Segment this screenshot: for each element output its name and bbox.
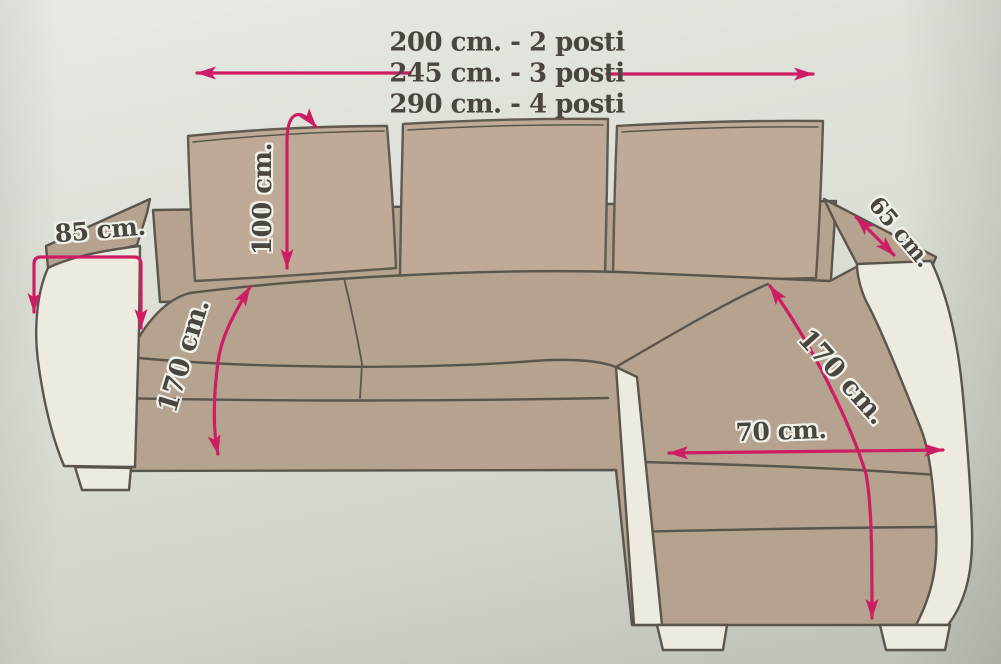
size-options: 200 cm. - 2 posti 245 cm. - 3 posti 290 …	[389, 28, 624, 121]
back-cushion-right	[613, 121, 823, 280]
sofa-body	[104, 266, 971, 625]
back-cushion-middle	[400, 119, 608, 278]
size-option-4-seats: 290 cm. - 4 posti	[389, 90, 624, 121]
back-height-label: 100 cm.	[248, 143, 278, 255]
chaise-width-label: 70 cm.	[735, 415, 827, 447]
chaise-foot-left	[657, 625, 727, 650]
chaise-foot-right	[880, 625, 950, 650]
back-cushion-left	[188, 126, 396, 281]
sofa-dimension-diagram: 200 cm. - 2 posti 245 cm. - 3 posti 290 …	[0, 0, 1001, 664]
sofa-foot-left	[75, 467, 131, 490]
left-armrest	[36, 246, 140, 467]
size-option-3-seats: 245 cm. - 3 posti	[389, 59, 624, 90]
size-option-2-seats: 200 cm. - 2 posti	[389, 28, 624, 59]
